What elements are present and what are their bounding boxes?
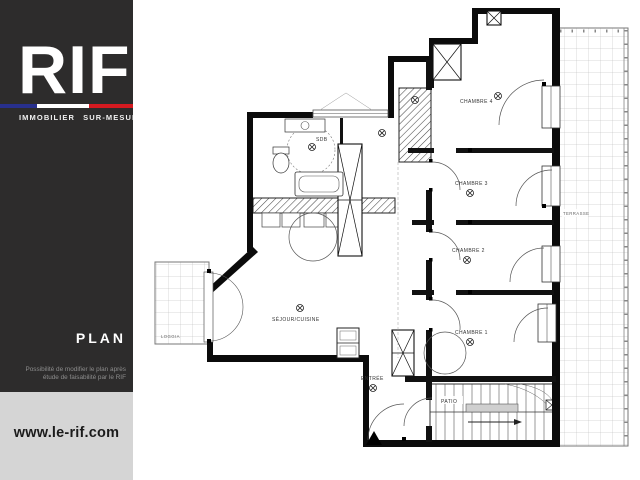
flag-white-segment — [37, 104, 89, 108]
loggia-area: LOGGIA — [155, 262, 209, 344]
entree-label: ENTRÉE — [361, 375, 384, 382]
duct-closet-top — [433, 44, 461, 80]
kitchen-counter — [253, 198, 395, 227]
chambre1-label: CHAMBRE 1 — [455, 330, 488, 336]
patio-area: PATIO — [430, 384, 558, 442]
flag-red-segment — [89, 104, 133, 108]
disclaimer-note: Possibilité de modifier le plan après ét… — [6, 366, 126, 382]
floor-plan-svg: TERRASSE LOGGIA PATIO — [133, 0, 640, 480]
toilet-icon — [273, 153, 289, 173]
bathtub-icon — [295, 172, 343, 196]
section-title: PLAN — [76, 330, 126, 346]
chambre1-door-arc — [432, 300, 460, 330]
flag-blue-segment — [0, 104, 37, 108]
chambre3-label: CHAMBRE 3 — [455, 181, 488, 187]
chambre2-door-arc — [432, 232, 460, 260]
sidebar: RIF IMMOBILIER SUR-MESURE PLAN Possibili… — [0, 0, 133, 392]
patio-label: PATIO — [441, 399, 457, 405]
rif-logo-text: RIF — [18, 36, 131, 104]
logo-tagline: IMMOBILIER SUR-MESURE — [19, 113, 145, 122]
entree-inner-door-arc — [404, 398, 432, 426]
chambre2-terrace-door-arc — [510, 248, 544, 282]
website-band: www.le-rif.com — [0, 392, 133, 480]
website-url[interactable]: www.le-rif.com — [0, 425, 133, 441]
duct-column-center — [338, 144, 362, 256]
duct-boxes — [338, 11, 501, 376]
cabinet-icon — [337, 328, 359, 358]
loggia-label: LOGGIA — [161, 334, 180, 339]
sdb-label: SDB — [316, 137, 328, 143]
room-labels: CHAMBRE 4 CHAMBRE 3 CHAMBRE 2 CHAMBRE 1 … — [272, 99, 493, 382]
floor-plan: TERRASSE LOGGIA PATIO — [133, 0, 640, 480]
chambre2-label: CHAMBRE 2 — [452, 248, 485, 254]
terrasse-label: TERRASSE — [563, 211, 589, 216]
disclaimer-line-2: étude de faisabilité par le RIF — [6, 374, 126, 382]
vanity-icon — [285, 119, 325, 132]
bathroom-fixtures — [273, 119, 343, 196]
duct-box-entree — [392, 330, 414, 376]
french-flag-divider — [0, 104, 133, 108]
sejour-label: SÉJOUR/CUISINE — [272, 316, 320, 323]
chambre4-label: CHAMBRE 4 — [460, 99, 493, 105]
duct-box-roof — [487, 11, 501, 25]
poster-canvas: RIF IMMOBILIER SUR-MESURE PLAN Possibili… — [0, 0, 640, 480]
terrasse-area: TERRASSE — [558, 28, 628, 446]
disclaimer-line-1: Possibilité de modifier le plan après — [6, 366, 126, 374]
window-band-top — [313, 93, 388, 117]
chambre4-door-arc — [499, 80, 544, 125]
